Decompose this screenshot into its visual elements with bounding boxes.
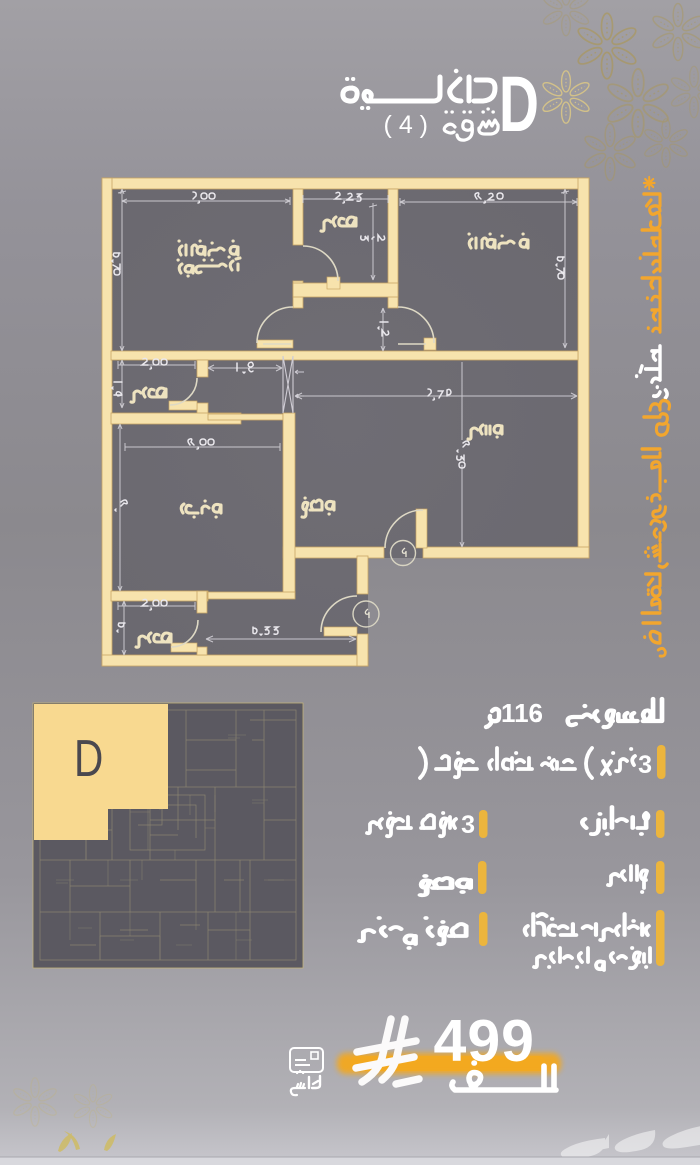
svg-text:499: 499 <box>434 1008 535 1074</box>
svg-text:D: D <box>499 60 539 148</box>
svg-text:( 4 ): ( 4 ) <box>384 111 428 139</box>
svg-text:3: 3 <box>461 811 475 839</box>
svg-text:3: 3 <box>638 751 652 779</box>
svg-text:D: D <box>74 729 103 787</box>
svg-text:116: 116 <box>501 698 543 728</box>
